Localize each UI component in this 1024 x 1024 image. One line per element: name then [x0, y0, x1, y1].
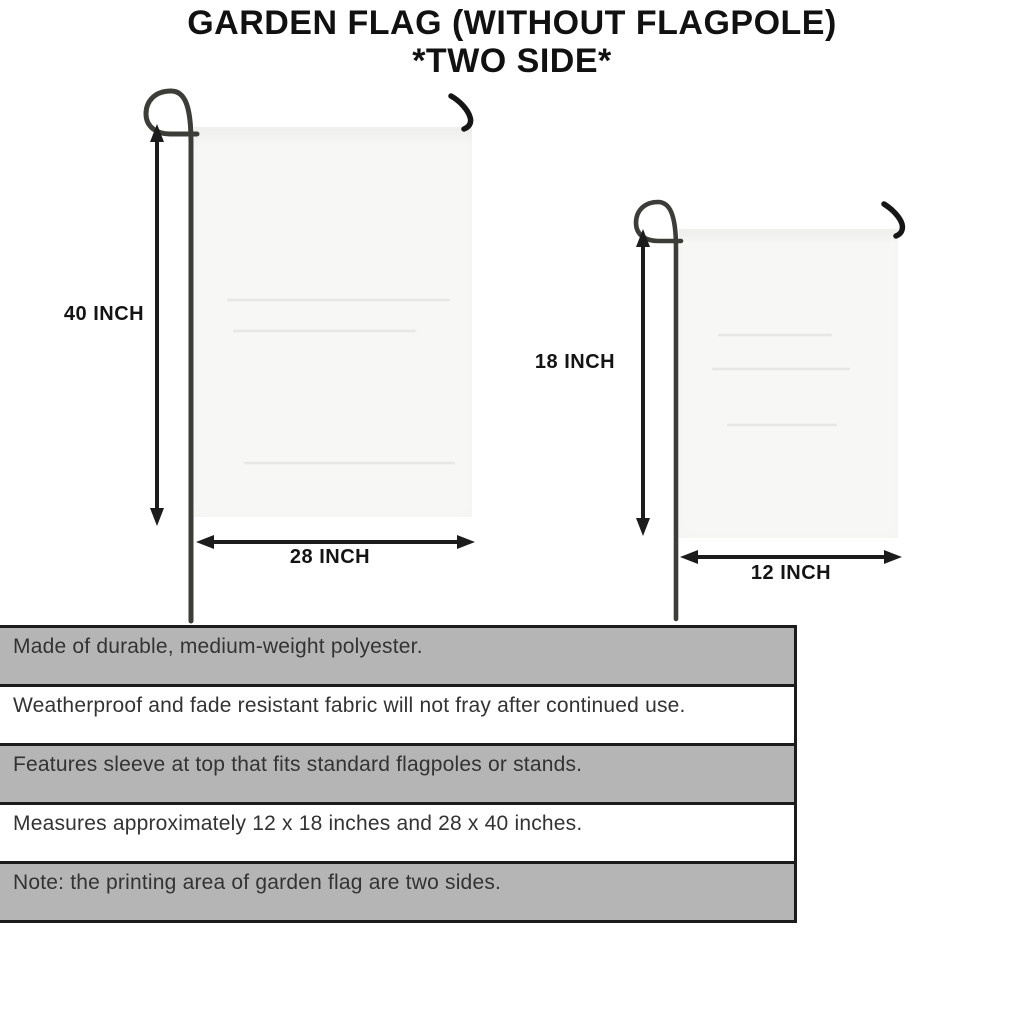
garden-flag-infographic: GARDEN FLAG (WITHOUT FLAGPOLE) *TWO SIDE… [0, 0, 1024, 1024]
feature-row: Weatherproof and fade resistant fabric w… [0, 687, 794, 746]
feature-table: Made of durable, medium-weight polyester… [0, 625, 797, 923]
width-dimension-label-small: 12 INCH [691, 562, 891, 585]
height-dimension-label-large: 40 INCH [48, 303, 160, 326]
feature-row: Note: the printing area of garden flag a… [0, 864, 794, 920]
flag-corner-hook-icon [884, 204, 902, 236]
width-dimension-label-large: 28 INCH [230, 546, 430, 569]
feature-row: Made of durable, medium-weight polyester… [0, 628, 794, 687]
feature-row: Measures approximately 12 x 18 inches an… [0, 805, 794, 864]
height-dimension-label-small: 18 INCH [518, 351, 632, 374]
flagpole-icon [146, 91, 197, 621]
feature-row: Features sleeve at top that fits standar… [0, 746, 794, 805]
flag-corner-hook-icon [451, 96, 471, 129]
height-arrow-small [636, 229, 650, 536]
